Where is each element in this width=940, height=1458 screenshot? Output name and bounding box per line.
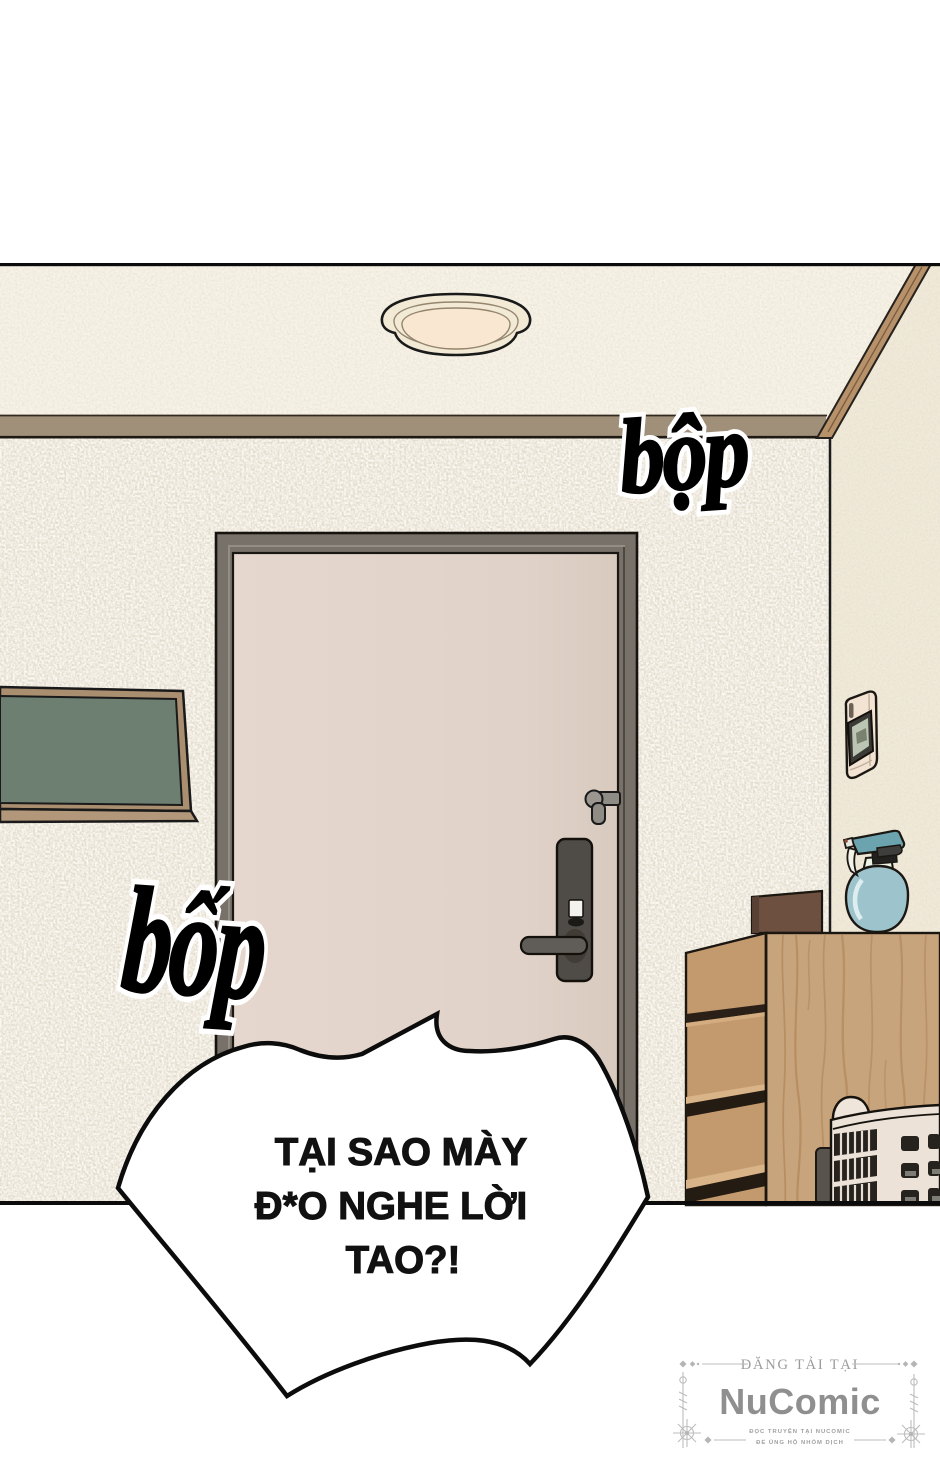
svg-text:ĐĂNG TẢI TẠI: ĐĂNG TẢI TẠI xyxy=(741,1356,860,1373)
svg-text:bộp: bộp xyxy=(615,391,751,517)
svg-text:bốp: bốp xyxy=(118,857,270,1032)
svg-text:NuComic: NuComic xyxy=(719,1381,881,1422)
svg-text:TAO?!: TAO?! xyxy=(346,1239,461,1282)
svg-text:TẠI SAO MÀY: TẠI SAO MÀY xyxy=(275,1130,528,1174)
svg-text:Đ*O NGHE LỜI: Đ*O NGHE LỜI xyxy=(255,1184,527,1228)
